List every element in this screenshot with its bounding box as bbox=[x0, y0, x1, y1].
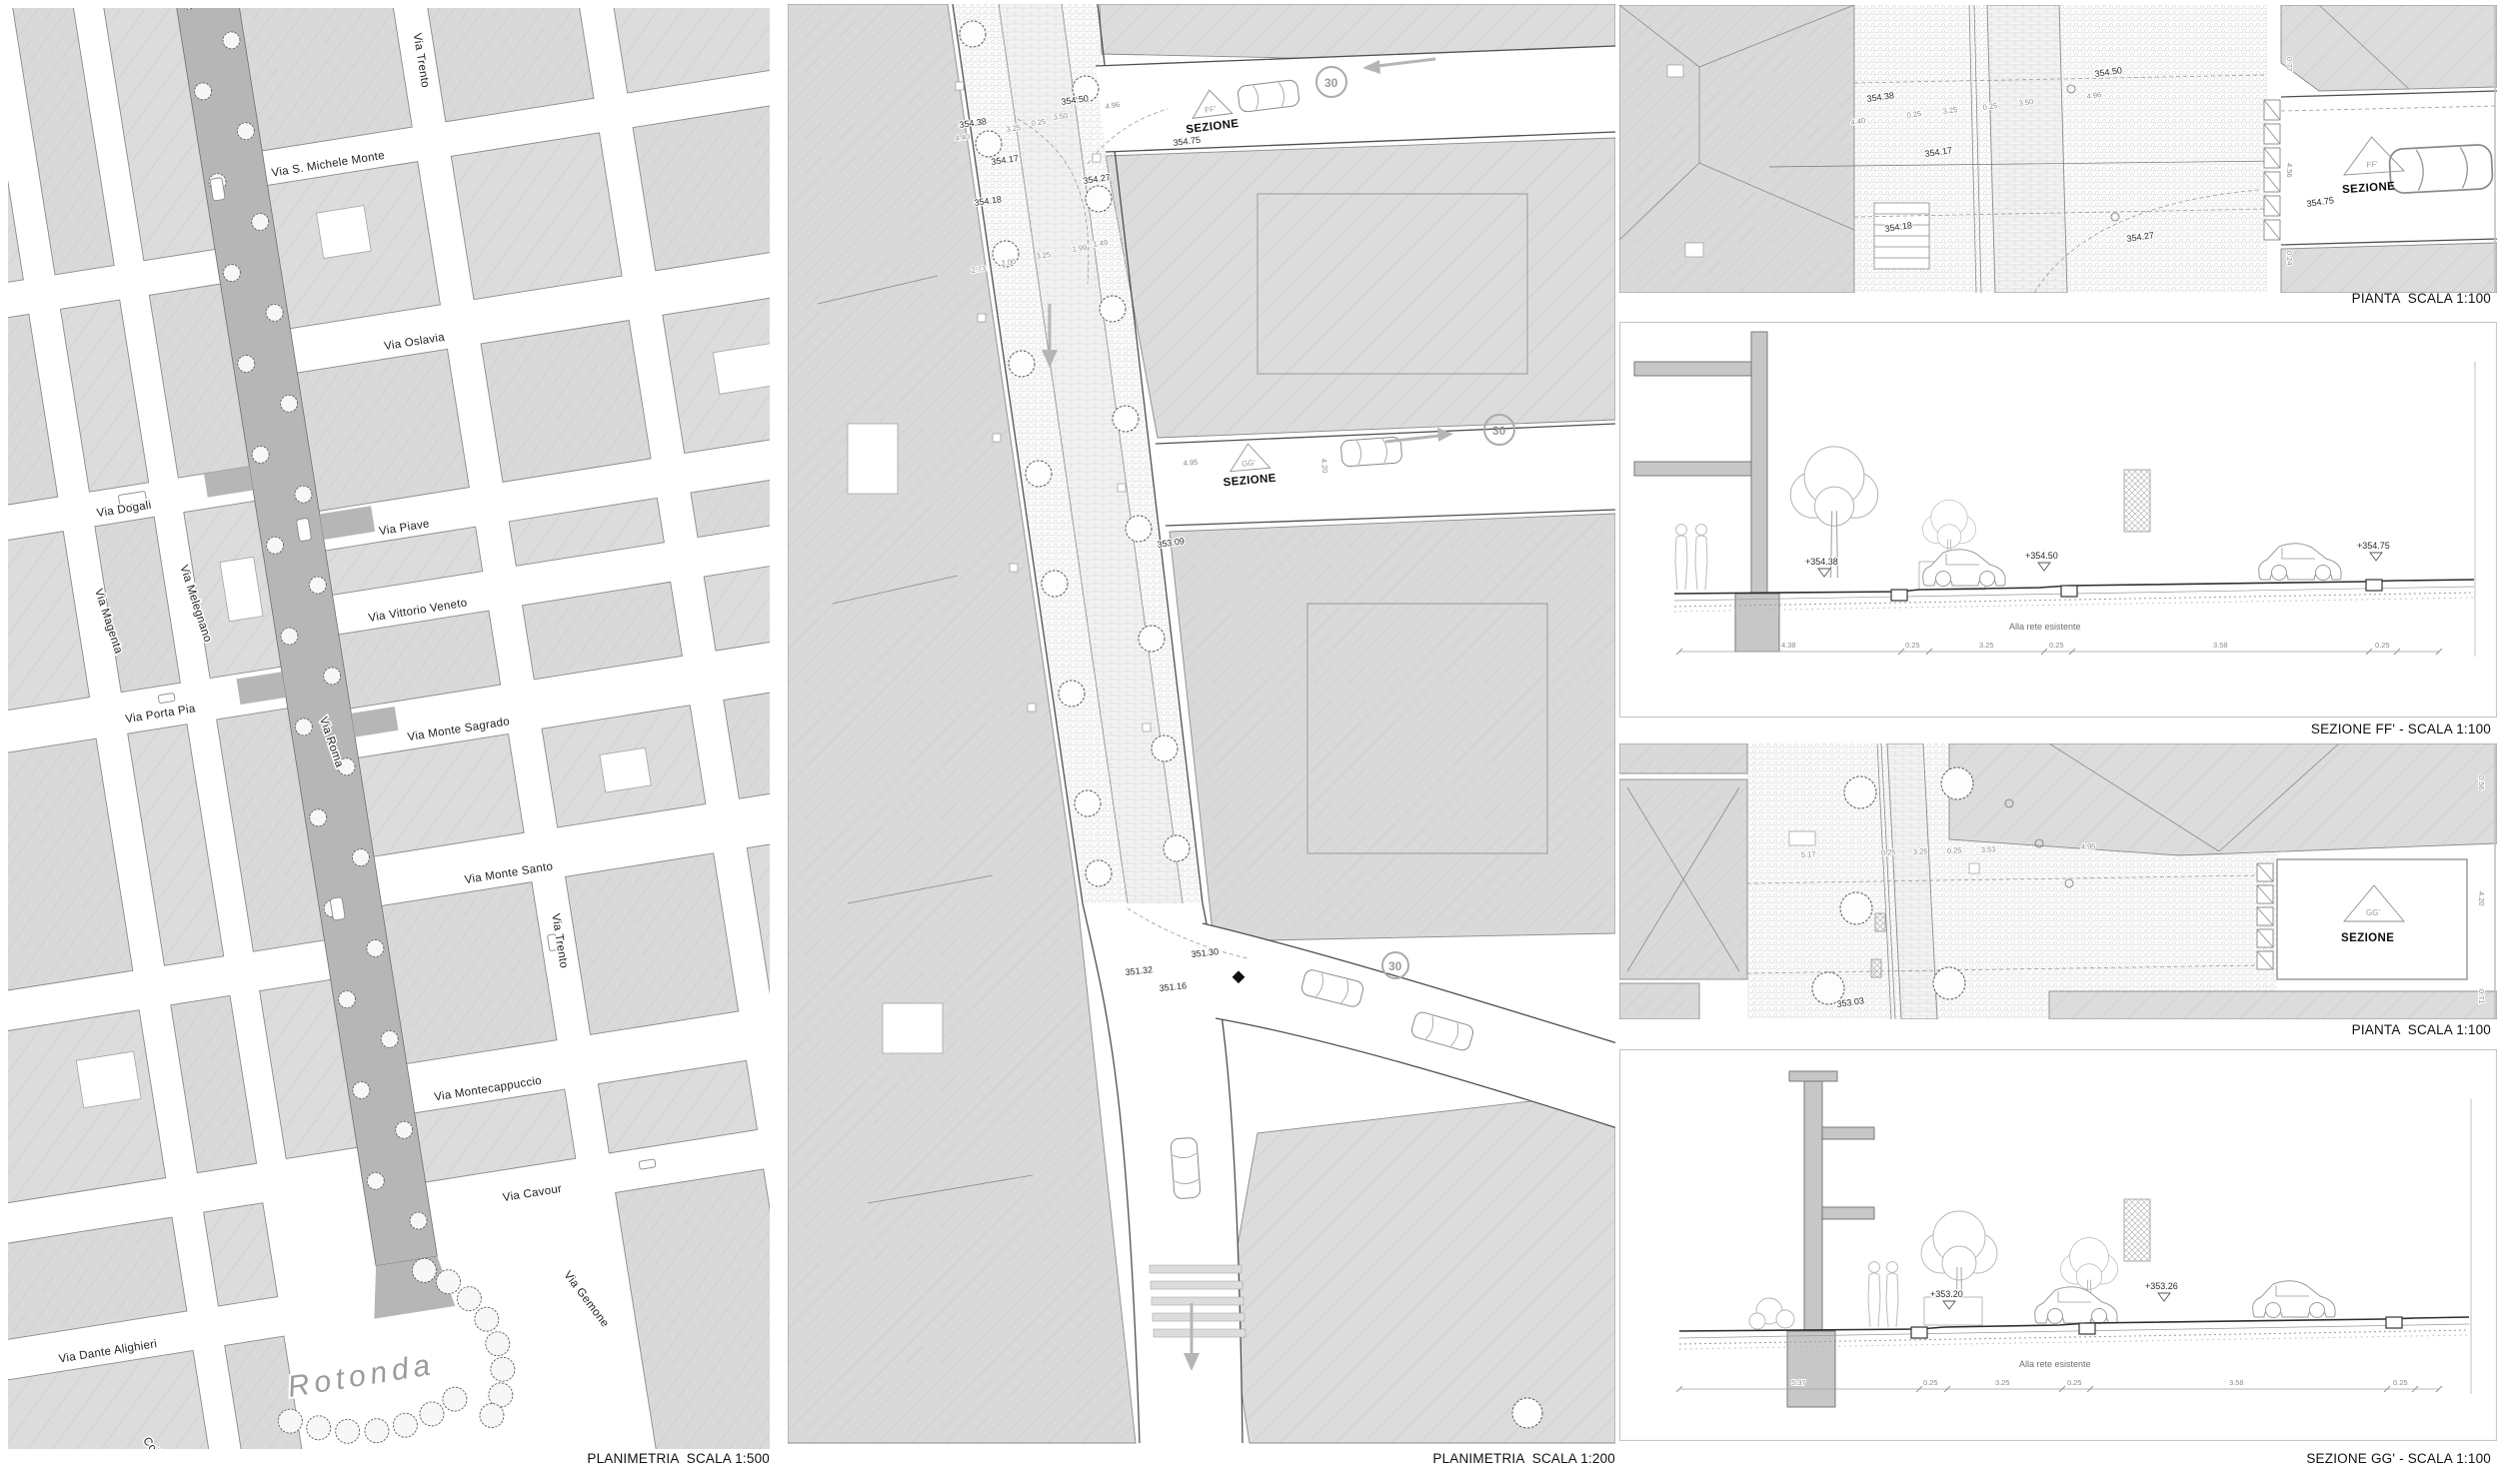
svg-text:5.37: 5.37 bbox=[1791, 1378, 1806, 1387]
svg-text:0.25: 0.25 bbox=[2393, 1378, 2408, 1387]
svg-text:0.25: 0.25 bbox=[1905, 641, 1920, 650]
caption-planimetria-500: PLANIMETRIA SCALA 1:500 bbox=[8, 1451, 770, 1466]
svg-text:0.24: 0.24 bbox=[2285, 251, 2294, 266]
svg-text:3.58: 3.58 bbox=[2229, 1378, 2244, 1387]
svg-text:4.20: 4.20 bbox=[2477, 891, 2486, 906]
svg-text:0.25: 0.25 bbox=[1923, 1378, 1938, 1387]
planimetria-200-panel: FF' SEZIONE 354.75 30 GG' SEZIONE 30 30 bbox=[788, 4, 1615, 1447]
svg-text:4.20: 4.20 bbox=[1319, 458, 1329, 473]
caption-planimetria-200: PLANIMETRIA SCALA 1:200 bbox=[788, 1451, 1615, 1466]
svg-text:0.25: 0.25 bbox=[2067, 1378, 2082, 1387]
svg-text:0.25: 0.25 bbox=[1881, 847, 1896, 857]
note-rete: Alla rete esistente bbox=[2009, 622, 2081, 632]
svg-text:3.25: 3.25 bbox=[1979, 641, 1994, 650]
caption-sezione-gg: SEZIONE GG' - SCALA 1:100 bbox=[1619, 1451, 2491, 1466]
drawing-sheet: Via Mazzini Via Trento Via S. Michele Mo… bbox=[0, 0, 2499, 1484]
svg-text:FF': FF' bbox=[2366, 160, 2378, 170]
svg-text:0.25: 0.25 bbox=[1947, 845, 1962, 855]
svg-text:30: 30 bbox=[1324, 76, 1338, 90]
car-icon bbox=[1171, 1137, 1201, 1199]
svg-text:3.58: 3.58 bbox=[2213, 641, 2228, 650]
kerb-hatch bbox=[2257, 863, 2273, 969]
section-mark-ff: FF' bbox=[1205, 104, 1218, 114]
planimetria-500-panel: Via Mazzini Via Trento Via S. Michele Mo… bbox=[8, 8, 770, 1449]
sezione-ff-panel: +354.38 +354.50 +354.75 Alla rete esiste… bbox=[1619, 322, 2497, 718]
caption-pianta-gg: PIANTA SCALA 1:100 bbox=[1619, 1022, 2491, 1037]
svg-text:0.56: 0.56 bbox=[2477, 775, 2486, 790]
section-mark-gg: GG' bbox=[1242, 458, 1256, 468]
svg-text:+353.26: +353.26 bbox=[2145, 1281, 2178, 1291]
ladder-hatch bbox=[2124, 1199, 2150, 1261]
svg-text:SEZIONE: SEZIONE bbox=[2341, 932, 2394, 944]
svg-text:4.56: 4.56 bbox=[2285, 163, 2294, 178]
sezione-gg-panel: +353.20 +353.26 Alla rete esistente 5.37… bbox=[1619, 1049, 2497, 1441]
svg-text:30: 30 bbox=[1492, 424, 1506, 438]
svg-text:3.25: 3.25 bbox=[1995, 1378, 2010, 1387]
pianta-gg-panel: GG' SEZIONE 353.03 5.17 0.25 3.25 0.25 3… bbox=[1619, 743, 2497, 1019]
svg-text:4.38: 4.38 bbox=[1781, 641, 1796, 650]
svg-text:4.95: 4.95 bbox=[2081, 841, 2096, 851]
svg-text:4.95: 4.95 bbox=[1183, 458, 1198, 468]
sezione-gg-plan-marker: GG' SEZIONE bbox=[2277, 859, 2467, 979]
svg-text:30: 30 bbox=[1388, 959, 1402, 973]
svg-text:0.71: 0.71 bbox=[2477, 989, 2486, 1004]
stairs bbox=[1874, 203, 1929, 269]
svg-text:5.17: 5.17 bbox=[1801, 849, 1816, 859]
svg-text:+353.20: +353.20 bbox=[1930, 1289, 1963, 1299]
caption-pianta-ff: PIANTA SCALA 1:100 bbox=[1619, 291, 2491, 306]
caption-sezione-ff: SEZIONE FF' - SCALA 1:100 bbox=[1619, 722, 2491, 737]
svg-text:3.53: 3.53 bbox=[1981, 844, 1996, 854]
svg-text:0.25: 0.25 bbox=[2375, 641, 2390, 650]
svg-text:0.25: 0.25 bbox=[2049, 641, 2064, 650]
pianta-ff-panel: FF' SEZIONE 354.38 354.50 354.17 354.75 … bbox=[1619, 5, 2497, 293]
svg-text:+354.75: +354.75 bbox=[2357, 541, 2390, 551]
svg-text:GG': GG' bbox=[2366, 908, 2380, 917]
note-rete: Alla rete esistente bbox=[2019, 1359, 2091, 1369]
svg-text:3.25: 3.25 bbox=[1913, 846, 1928, 856]
left-building bbox=[1619, 5, 1854, 293]
ladder-hatch bbox=[2124, 470, 2150, 532]
svg-text:+354.38: +354.38 bbox=[1805, 557, 1838, 567]
left-building bbox=[1619, 743, 1747, 1019]
svg-text:+354.50: +354.50 bbox=[2025, 551, 2058, 561]
svg-text:0.77: 0.77 bbox=[2285, 57, 2294, 72]
